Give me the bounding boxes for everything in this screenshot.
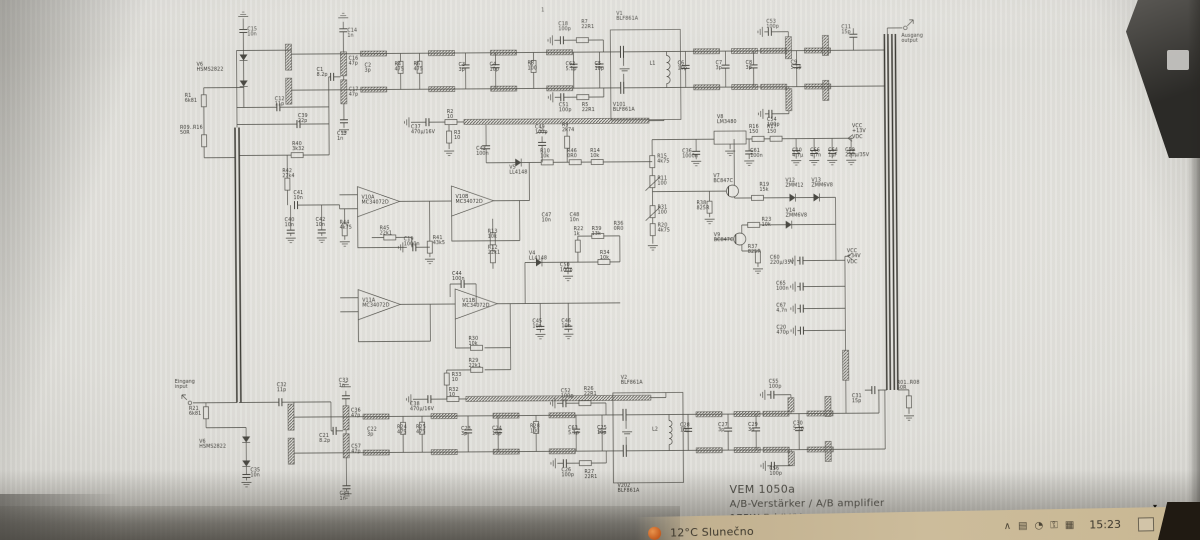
show-desktop-button[interactable]	[1138, 517, 1154, 531]
taskbar-clock[interactable]: 15:23	[1089, 518, 1121, 532]
tray-icon[interactable]: ⚿	[1050, 520, 1058, 531]
bezel-reflection	[1167, 50, 1189, 70]
weather-widget[interactable]: 12°C Slunečno	[670, 525, 754, 540]
tray-icon[interactable]: ◔	[1034, 520, 1043, 531]
photo-vignette	[0, 0, 1200, 540]
tray-icons: ∧▤◔⚿▦	[1004, 520, 1075, 532]
tray-icon[interactable]: ∧	[1004, 521, 1012, 532]
photo-corner-bottom-left	[0, 494, 120, 540]
tray-icon[interactable]: ▦	[1065, 520, 1075, 531]
taskbar-spacer	[763, 527, 995, 531]
tray-icon[interactable]: ▤	[1018, 521, 1028, 532]
photo-of-screen: C15 10nV6 HSMS2822R1 6k81R09..R16 50RC12…	[0, 0, 1200, 540]
weather-icon[interactable]	[648, 527, 661, 540]
photo-edge-right	[1188, 0, 1200, 540]
